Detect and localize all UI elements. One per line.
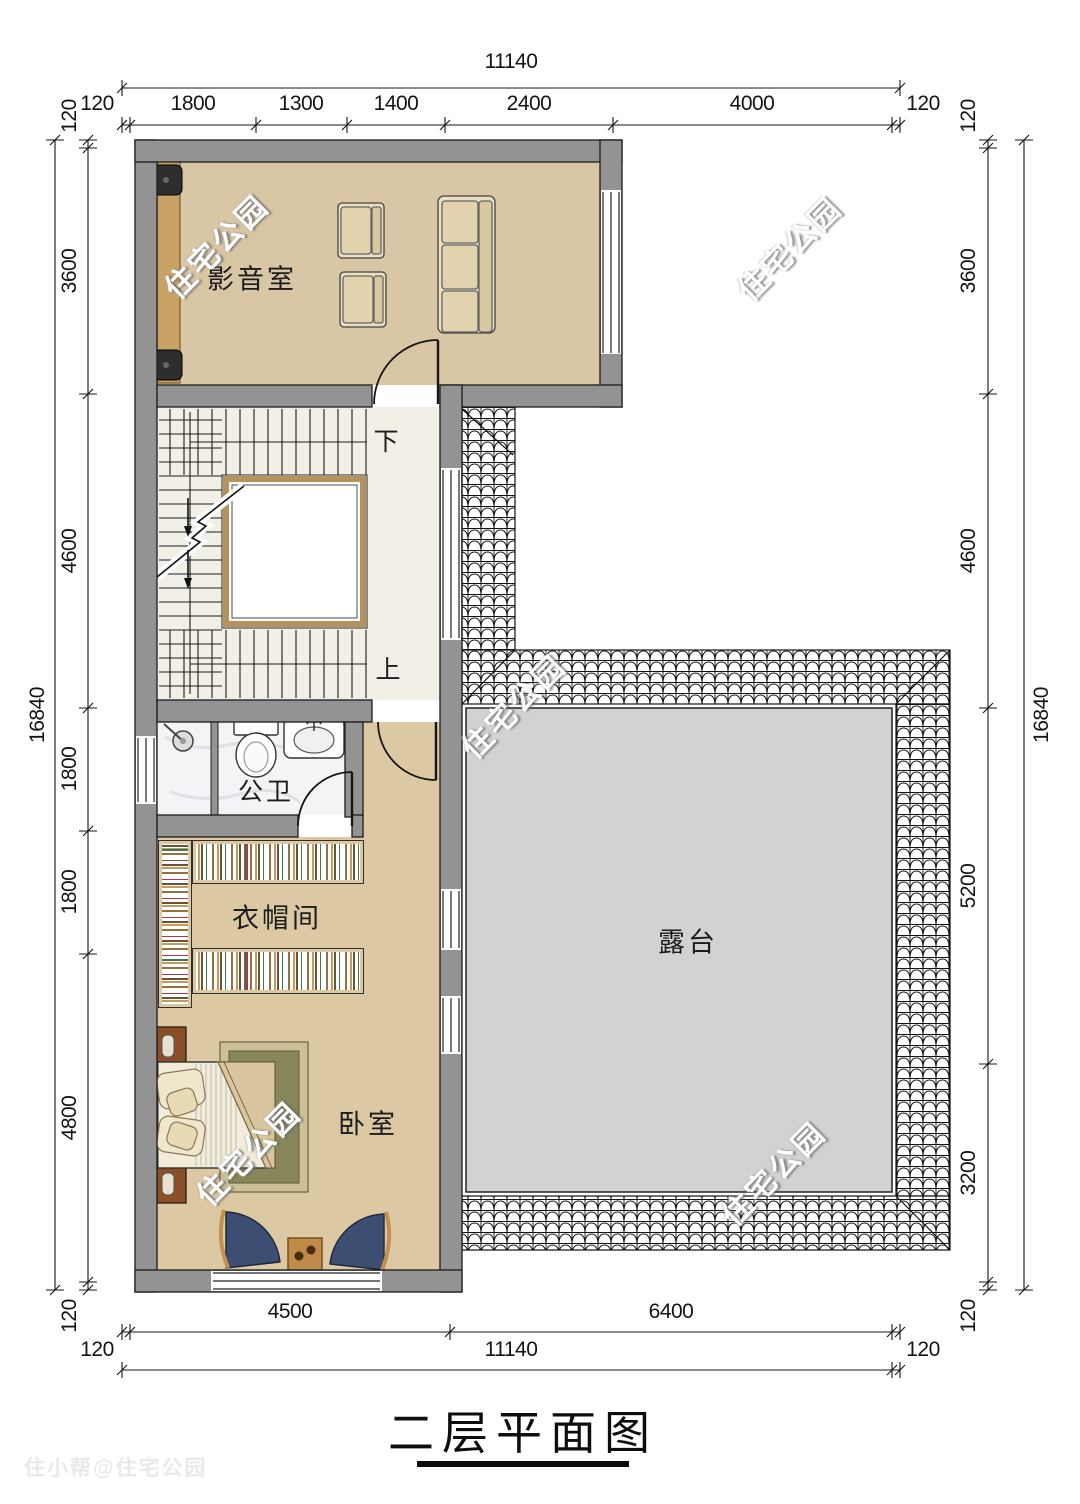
- dim-top-4: 2400: [507, 92, 552, 116]
- dim-left-2: 4600: [58, 529, 82, 574]
- window: [211, 1271, 382, 1291]
- room-label-bath: 公卫: [238, 772, 294, 808]
- wardrobe-rack: [192, 840, 364, 884]
- dim-right-3: 5200: [957, 864, 981, 909]
- dim-top-3: 1400: [374, 92, 419, 116]
- dim-bottom-4500: 4500: [268, 1300, 313, 1324]
- window: [441, 468, 461, 640]
- dim-right-4: 3200: [957, 1151, 981, 1196]
- dim-left-4: 1800: [58, 870, 82, 915]
- dim-top-1: 1800: [171, 92, 216, 116]
- page-title: 二层平面图: [388, 1397, 658, 1463]
- dim-left-3: 1800: [58, 747, 82, 792]
- window: [136, 736, 156, 804]
- dim-left-0: 120: [58, 99, 82, 133]
- armchair: [338, 203, 384, 258]
- dim-right-5: 120: [957, 1299, 981, 1333]
- floor-plan-drawing: [0, 0, 1080, 1504]
- armchair: [340, 272, 386, 327]
- dim-top-total: 11140: [485, 50, 538, 74]
- title-underline: [417, 1461, 629, 1467]
- side-table: [288, 1238, 322, 1272]
- dim-left-1: 3600: [58, 249, 82, 294]
- window: [441, 889, 461, 950]
- dim-left-total: 16840: [26, 687, 50, 743]
- dim-right-2: 4600: [957, 529, 981, 574]
- dim-bottom-120r: 120: [906, 1338, 940, 1362]
- floor-plan-page: 影音室 公卫 衣帽间 卧室 露台 下 上 11140 120 1800 1300…: [0, 0, 1080, 1504]
- stair-label-up: 上: [375, 650, 400, 686]
- watermark-credit: 住小帮@住宅公园: [24, 1452, 207, 1482]
- sofa: [438, 196, 495, 333]
- wardrobe-rack: [158, 840, 192, 1008]
- stair-void: [222, 475, 367, 628]
- dim-bottom-total: 11140: [485, 1338, 538, 1362]
- dim-right-0: 120: [957, 99, 981, 133]
- dim-bottom-6400: 6400: [649, 1300, 694, 1324]
- dim-top-6: 120: [906, 92, 940, 116]
- dim-top-5: 4000: [730, 92, 775, 116]
- dim-left-5: 4800: [58, 1096, 82, 1141]
- window: [601, 190, 621, 354]
- dim-bottom-120l: 120: [80, 1338, 114, 1362]
- dim-right-1: 3600: [957, 249, 981, 294]
- dim-left-6: 120: [58, 1299, 82, 1333]
- stair-label-down: 下: [373, 422, 398, 458]
- room-label-terrace: 露台: [658, 921, 718, 960]
- dim-top-0: 120: [80, 92, 114, 116]
- room-label-cloak: 衣帽间: [232, 897, 322, 936]
- dim-top-2: 1300: [279, 92, 324, 116]
- dim-right-total: 16840: [1030, 687, 1054, 743]
- room-label-bed: 卧室: [338, 1103, 398, 1142]
- window: [441, 996, 461, 1054]
- wardrobe-rack: [192, 948, 364, 994]
